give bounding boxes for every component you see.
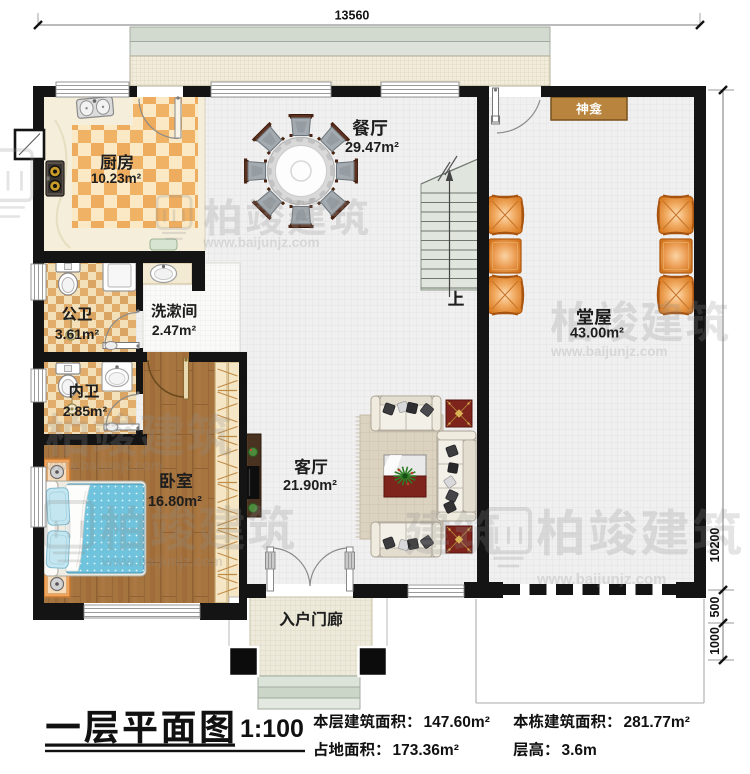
- svg-text:147.60m²: 147.60m²: [424, 714, 490, 731]
- svg-text:16.80m²: 16.80m²: [148, 494, 202, 510]
- svg-text:www.baijunjz.com: www.baijunjz.com: [550, 344, 668, 359]
- svg-text:2.85m²: 2.85m²: [63, 403, 108, 419]
- svg-text:21.90m²: 21.90m²: [283, 478, 337, 494]
- svg-text:3.6m: 3.6m: [562, 742, 597, 759]
- svg-text:www.baijunjz.com: www.baijunjz.com: [202, 235, 320, 250]
- svg-text:29.47m²: 29.47m²: [345, 140, 399, 156]
- svg-text:www.baijunjz.com: www.baijunjz.com: [536, 571, 666, 588]
- svg-text:13560: 13560: [335, 9, 370, 23]
- svg-text:3.61m²: 3.61m²: [55, 326, 100, 342]
- svg-text:1:100: 1:100: [240, 715, 304, 743]
- svg-text:281.77m²: 281.77m²: [624, 714, 690, 731]
- svg-text:10.23m²: 10.23m²: [91, 171, 142, 186]
- svg-text:2.47m²: 2.47m²: [152, 322, 197, 338]
- svg-text:43.00m²: 43.00m²: [570, 326, 624, 342]
- svg-text:10200: 10200: [708, 528, 722, 563]
- svg-text:www.baijunjz.com: www.baijunjz.com: [101, 553, 223, 569]
- svg-text:173.36m²: 173.36m²: [393, 742, 459, 759]
- svg-text:500: 500: [708, 597, 722, 618]
- svg-text:www.baijunjz.com: www.baijunjz.com: [45, 458, 163, 473]
- svg-text:1000: 1000: [708, 627, 722, 655]
